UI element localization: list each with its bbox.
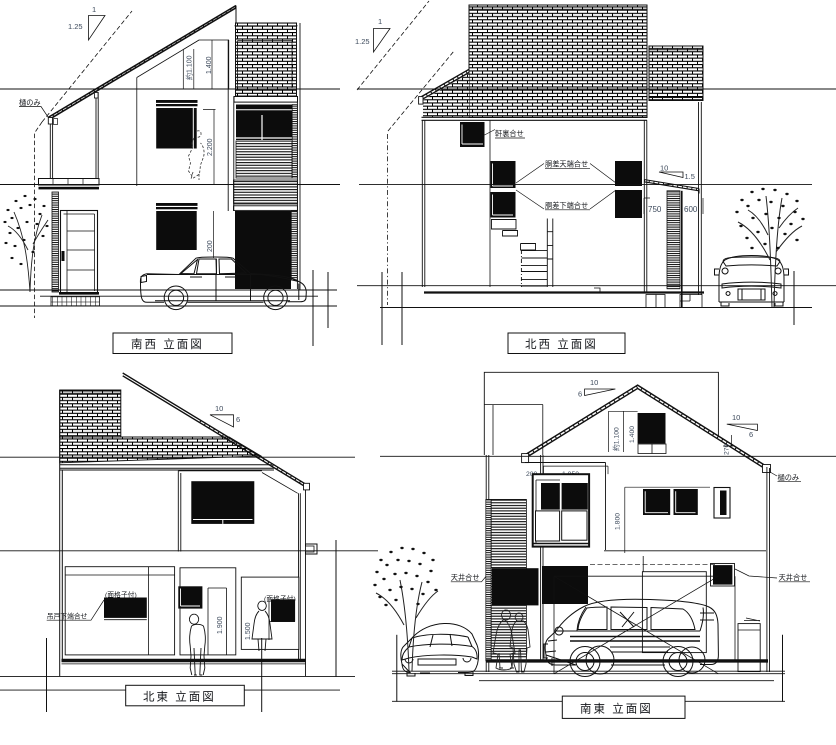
svg-text:1.800: 1.800 (615, 513, 622, 530)
svg-text:約1.100: 約1.100 (612, 427, 621, 451)
svg-text:1: 1 (378, 17, 382, 26)
svg-text:1.400: 1.400 (206, 56, 213, 74)
svg-text:1.900: 1.900 (217, 616, 224, 634)
svg-text:南東 立面図: 南東 立面図 (580, 702, 653, 716)
svg-text:北西 立面図: 北西 立面図 (525, 337, 598, 351)
svg-text:6: 6 (236, 415, 240, 424)
svg-text:北東 立面図: 北東 立面図 (143, 690, 216, 704)
svg-text:600: 600 (684, 205, 698, 214)
svg-text:200: 200 (207, 240, 214, 252)
svg-text:樋のみ: 樋のみ (778, 473, 800, 482)
svg-text:吊戸下端合せ: 吊戸下端合せ (47, 612, 88, 621)
svg-text:6: 6 (749, 430, 753, 439)
svg-text:2.200: 2.200 (207, 138, 214, 156)
svg-text:750: 750 (648, 205, 662, 214)
svg-text:樋のみ: 樋のみ (19, 98, 41, 107)
svg-text:270: 270 (724, 443, 731, 455)
svg-text:胴差天端合せ: 胴差天端合せ (545, 160, 588, 169)
svg-text:天井合せ: 天井合せ (451, 573, 480, 582)
svg-text:6: 6 (578, 390, 582, 399)
svg-text:約1.100: 約1.100 (185, 55, 194, 80)
svg-text:10: 10 (215, 404, 223, 413)
svg-text:10: 10 (590, 378, 598, 387)
svg-text:1.25: 1.25 (355, 37, 370, 46)
svg-text:天井合せ: 天井合せ (779, 573, 808, 582)
svg-text:南西 立面図: 南西 立面図 (131, 337, 204, 351)
svg-text:10: 10 (732, 413, 740, 422)
svg-text:1.400: 1.400 (629, 426, 636, 443)
svg-text:軒裏合せ: 軒裏合せ (495, 129, 524, 138)
svg-text:1.5: 1.5 (685, 172, 695, 181)
svg-text:1.25: 1.25 (68, 22, 83, 31)
svg-text:胴差下端合せ: 胴差下端合せ (545, 201, 588, 210)
svg-text:1: 1 (92, 5, 96, 14)
svg-text:1.500: 1.500 (245, 622, 252, 640)
svg-text:10: 10 (660, 164, 668, 173)
